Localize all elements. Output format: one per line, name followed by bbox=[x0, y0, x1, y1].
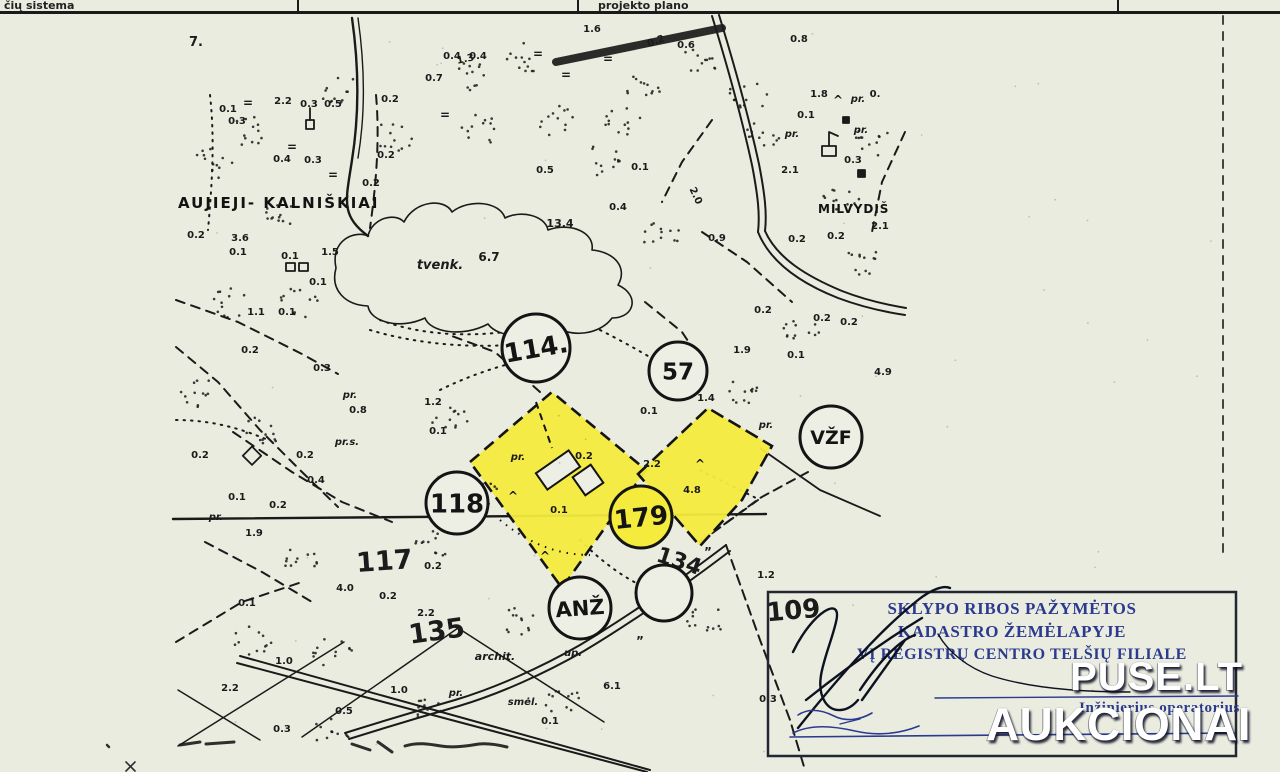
plot-number-label: ANŽ bbox=[555, 594, 606, 622]
plot-number-label: VŽF bbox=[810, 426, 851, 449]
plot-number-circle: ANŽ bbox=[549, 577, 611, 639]
map-label: 0.1 bbox=[797, 110, 815, 121]
map-label: 1.2 bbox=[424, 397, 442, 408]
map-label: 0.2 bbox=[269, 500, 287, 511]
map-label: 0.1 bbox=[281, 251, 299, 262]
map-label: 2.2 bbox=[221, 683, 239, 694]
map-label: 1.2 bbox=[757, 570, 775, 581]
map-label: 0.2 bbox=[813, 313, 831, 324]
map-label: 3.6 bbox=[231, 233, 249, 244]
map-label: pr. bbox=[850, 94, 865, 105]
map-label: = bbox=[243, 96, 253, 110]
map-label: 0.2 bbox=[241, 345, 259, 356]
map-label: smėl. bbox=[508, 697, 538, 708]
place-name-label: MILVYDIŠ bbox=[818, 201, 889, 216]
map-label: 0.2 bbox=[424, 561, 442, 572]
map-label: ” bbox=[704, 545, 712, 559]
map-label: 2.2 bbox=[643, 459, 661, 470]
map-label: 109 bbox=[765, 594, 822, 629]
map-label: 0.1 bbox=[229, 247, 247, 258]
plot-number-circle: VŽF bbox=[800, 406, 862, 468]
map-label: 0.2 bbox=[191, 450, 209, 461]
map-label: ^ bbox=[540, 549, 550, 563]
map-label: 0.2 bbox=[187, 230, 205, 241]
map-label: archit. bbox=[475, 650, 515, 663]
map-label: 0.8 bbox=[349, 405, 367, 416]
stamp-line-2: KADASTRO ŽEMĖLAPYJE bbox=[898, 622, 1126, 641]
map-label: 0. bbox=[870, 89, 881, 100]
map-label: 0.5 bbox=[536, 165, 554, 176]
map-label: ” bbox=[636, 634, 644, 648]
map-label: 1.8 bbox=[810, 89, 828, 100]
map-label: 0.5 bbox=[324, 99, 342, 110]
map-label: ^ bbox=[695, 457, 705, 471]
map-label: 1.6 bbox=[583, 24, 601, 35]
map-label: 0.7 bbox=[425, 73, 443, 84]
map-label: 117 bbox=[355, 544, 413, 579]
map-label: 0.6 bbox=[677, 40, 695, 51]
map-label: 1.0 bbox=[390, 685, 408, 696]
scanned-cadastral-document: čių sistema projekto plano bbox=[0, 0, 1280, 772]
header-right-text: projekto plano bbox=[598, 0, 689, 12]
map-label: 0.4 bbox=[307, 475, 325, 486]
map-label: pr. bbox=[510, 452, 525, 463]
map-label: 13.4 bbox=[546, 217, 573, 230]
map-label: = bbox=[561, 68, 571, 82]
plot-number-circle: 114. bbox=[502, 314, 570, 382]
map-label: ^ bbox=[508, 489, 518, 503]
map-label: = bbox=[328, 168, 338, 182]
map-label: 4.8 bbox=[683, 485, 701, 496]
plot-number-circle: 57 bbox=[649, 342, 707, 400]
map-label: 1.9 bbox=[733, 345, 751, 356]
map-label: 0.1 bbox=[429, 426, 447, 437]
map-label: 0.4 bbox=[609, 202, 627, 213]
plot-number-circle: 179 bbox=[610, 486, 672, 548]
map-label: 2.1 bbox=[871, 221, 889, 232]
map-label: pr. bbox=[758, 420, 773, 431]
map-label: 2.1 bbox=[781, 165, 799, 176]
map-label: 0.8 bbox=[790, 34, 808, 45]
map-label: 0.2 bbox=[362, 178, 380, 189]
map-label: 0.1 bbox=[550, 505, 568, 516]
map-label: 0.2 bbox=[788, 234, 806, 245]
map-label: pr. bbox=[208, 512, 223, 523]
map-label: 1.4 bbox=[697, 393, 715, 404]
header-left-text: čių sistema bbox=[4, 0, 74, 12]
watermark-line2: AUKCIONAI bbox=[986, 701, 1251, 747]
map-label: = bbox=[440, 108, 450, 122]
map-label: pr. bbox=[853, 125, 868, 136]
map-label: 0.2 bbox=[840, 317, 858, 328]
map-label: 1.9 bbox=[245, 528, 263, 539]
map-label: 0.2 bbox=[296, 450, 314, 461]
map-label: 6.7 bbox=[478, 250, 499, 264]
map-label: 0.3 bbox=[304, 155, 322, 166]
stamp-line-1: SKLYPO RIBOS PAŽYMĖTOS bbox=[887, 599, 1136, 618]
map-label: tvenk. bbox=[417, 258, 463, 273]
map-label: 0.2 bbox=[381, 94, 399, 105]
map-label: 0.2 bbox=[379, 591, 397, 602]
map-label: 4.9 bbox=[874, 367, 892, 378]
map-label: 0.3 bbox=[844, 155, 862, 166]
map-label: 0.4 bbox=[273, 154, 291, 165]
map-label: pr. bbox=[784, 129, 799, 140]
map-label: 0.1 bbox=[541, 716, 559, 727]
map-label: 4.0 bbox=[336, 583, 354, 594]
place-name-label: AUJIEJI- KALNIŠKIAI bbox=[178, 193, 379, 212]
map-label: 6.1 bbox=[603, 681, 621, 692]
map-label: 0.5 bbox=[335, 706, 353, 717]
plot-number-label: 57 bbox=[662, 359, 694, 385]
watermark-line1: PUSE.LT bbox=[1070, 657, 1243, 697]
map-label: 0.3 bbox=[228, 116, 246, 127]
map-label: 0.2 bbox=[754, 305, 772, 316]
map-label: 0.2 bbox=[377, 150, 395, 161]
map-label: = bbox=[287, 140, 297, 154]
map-label: 0.1 bbox=[219, 104, 237, 115]
plot-number-circle bbox=[636, 565, 692, 621]
map-label: 0.1 bbox=[631, 162, 649, 173]
plot-number-label: 179 bbox=[613, 501, 670, 537]
map-label: 0.3 bbox=[313, 363, 331, 374]
map-label: pr. bbox=[448, 688, 463, 699]
map-label: 7. bbox=[189, 35, 203, 50]
map-label: 0.3 bbox=[300, 99, 318, 110]
map-label: 0.1 bbox=[787, 350, 805, 361]
map-label: ^ bbox=[833, 93, 843, 107]
plot-number-circle: 118 bbox=[426, 472, 488, 534]
map-label: = bbox=[603, 52, 613, 66]
map-label: 1.0 bbox=[275, 656, 293, 667]
map-label: 1.1 bbox=[247, 307, 265, 318]
map-label: 0.1 bbox=[228, 492, 246, 503]
map-label: up. bbox=[564, 648, 582, 659]
plot-number-label: 118 bbox=[430, 489, 484, 519]
map-label: 0.1 bbox=[278, 307, 296, 318]
map-label: 1.5 bbox=[321, 247, 339, 258]
map-label: 0.9 bbox=[708, 233, 726, 244]
map-label: = bbox=[533, 47, 543, 61]
map-label: 0.2 bbox=[575, 451, 593, 462]
map-label: pr.s. bbox=[334, 437, 359, 448]
map-label: 2.2 bbox=[274, 96, 292, 107]
map-label: 0.1 bbox=[640, 406, 658, 417]
map-label: pr. bbox=[342, 390, 357, 401]
map-label: 0.1 bbox=[309, 277, 327, 288]
map-label: 0.3 bbox=[273, 724, 291, 735]
map-label: 0.2 bbox=[827, 231, 845, 242]
map-label: 0.1 bbox=[238, 598, 256, 609]
